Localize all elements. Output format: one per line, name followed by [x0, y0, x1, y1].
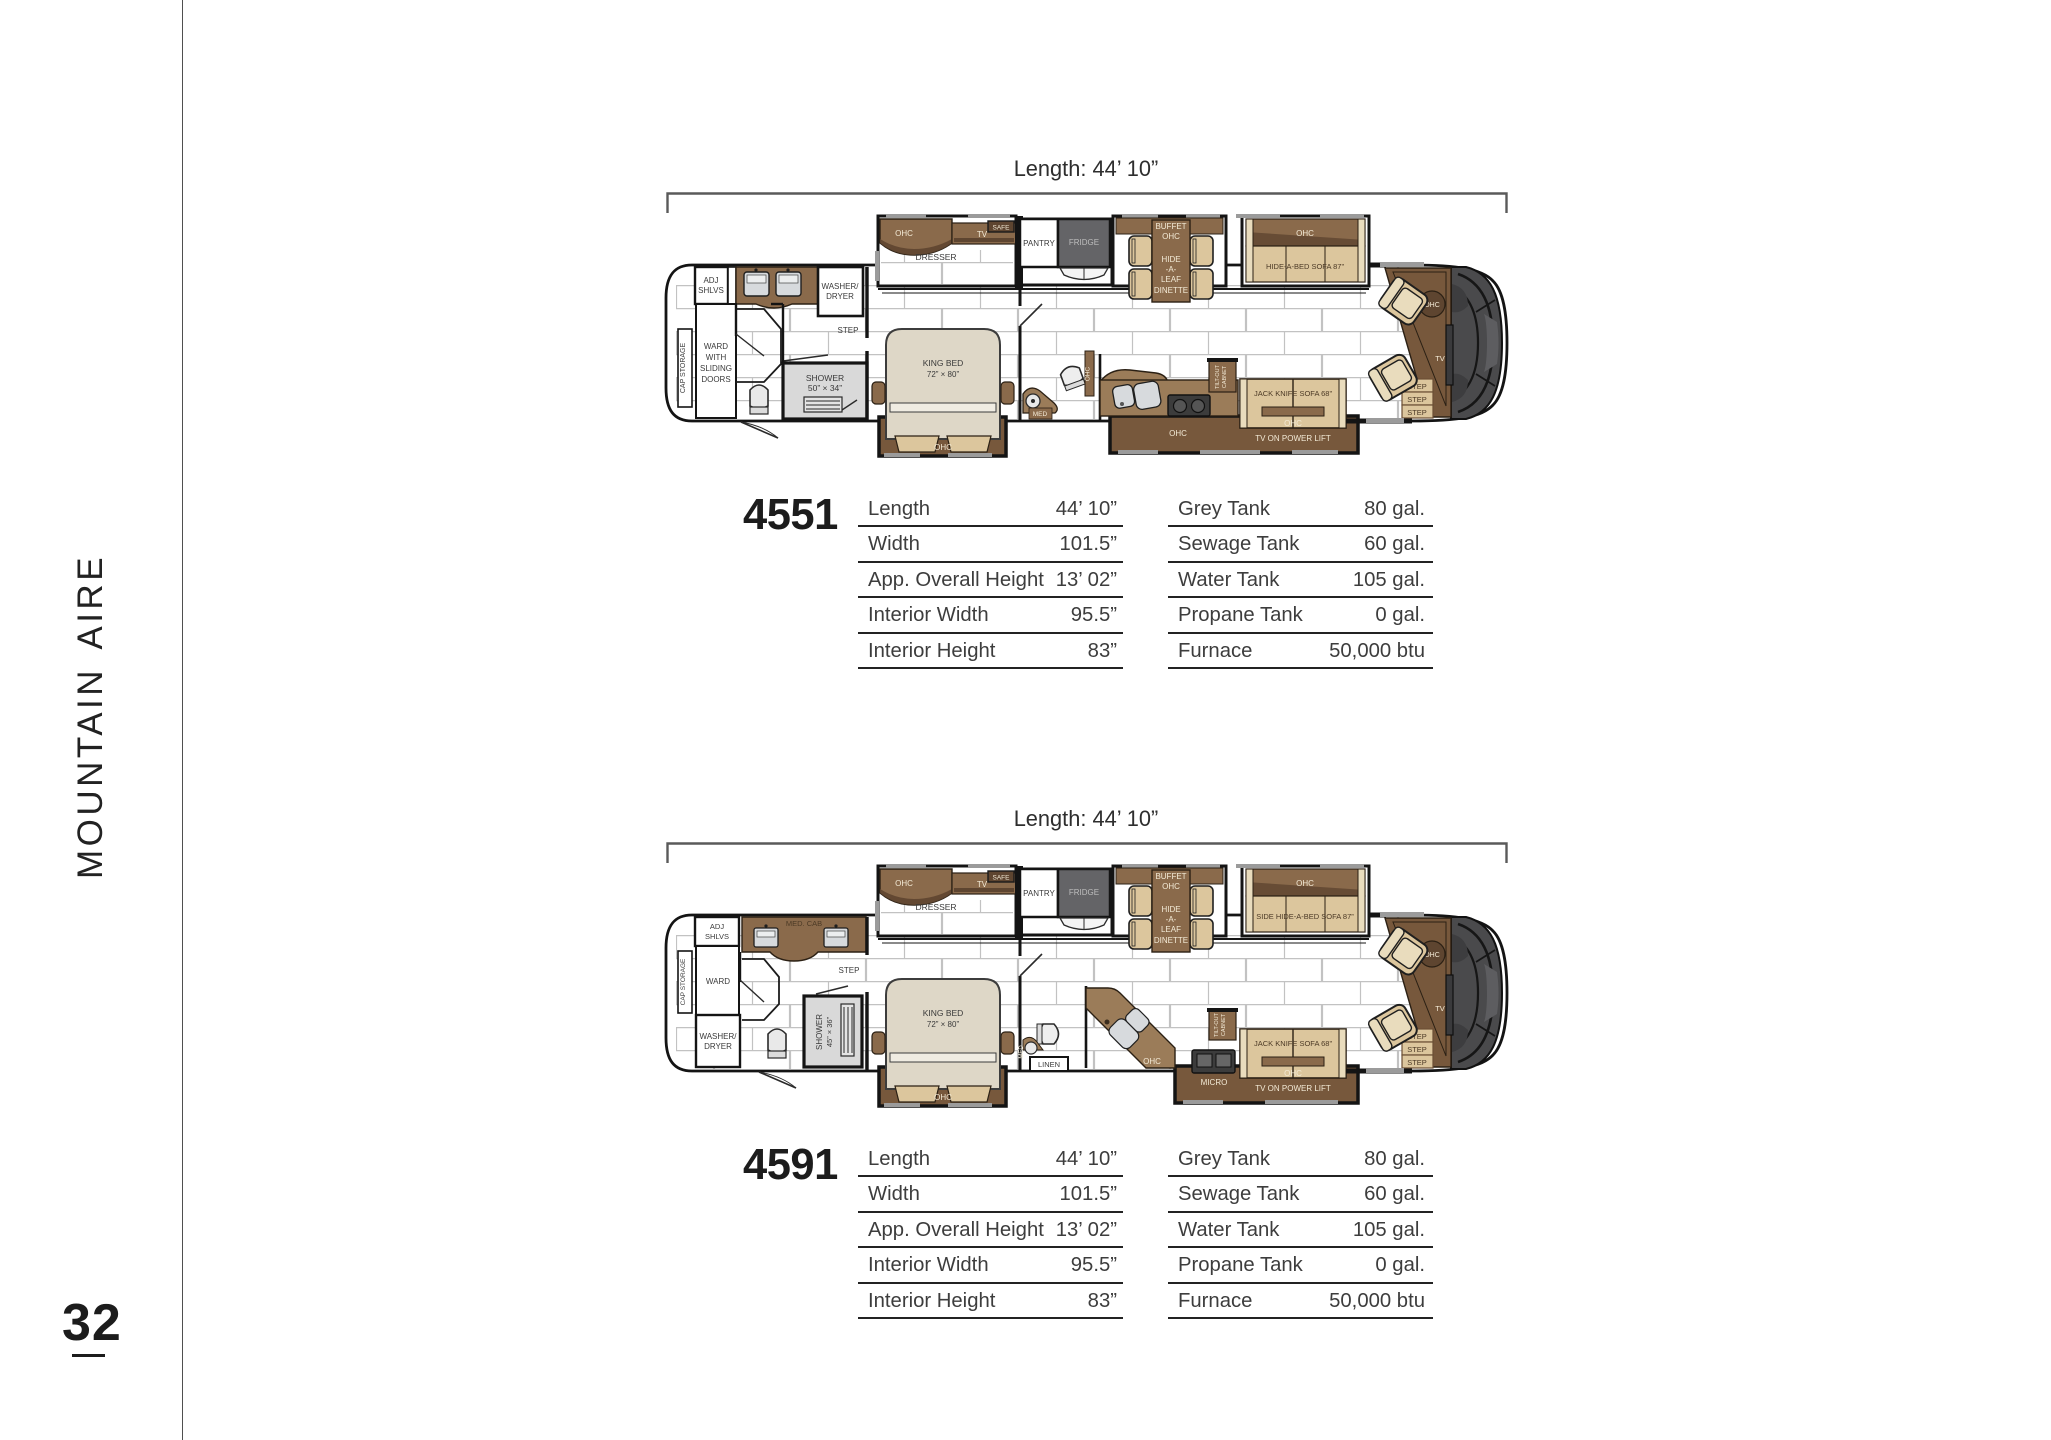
- svg-text:DINETTE: DINETTE: [1154, 936, 1188, 945]
- svg-text:SAFE: SAFE: [993, 225, 1011, 232]
- svg-text:OHC: OHC: [1162, 882, 1180, 891]
- svg-text:OHC: OHC: [1284, 419, 1302, 428]
- svg-text:SAFE: SAFE: [993, 875, 1011, 882]
- svg-text:HIDE: HIDE: [1161, 255, 1180, 264]
- svg-text:OHC: OHC: [1162, 232, 1180, 241]
- svg-text:TILT-OUT: TILT-OUT: [1214, 1012, 1220, 1037]
- svg-text:OHC: OHC: [1085, 366, 1092, 381]
- svg-text:LEAF: LEAF: [1161, 925, 1181, 934]
- svg-text:BUFFET: BUFFET: [1155, 222, 1186, 231]
- svg-text:OHC: OHC: [934, 443, 952, 452]
- svg-text:DINETTE: DINETTE: [1154, 286, 1188, 295]
- svg-text:45” × 36”: 45” × 36”: [825, 1016, 834, 1047]
- svg-text:STEP: STEP: [1407, 1058, 1427, 1067]
- svg-text:HIDE-A-BED SOFA 87”: HIDE-A-BED SOFA 87”: [1266, 262, 1344, 271]
- svg-text:OHC: OHC: [1284, 1069, 1302, 1078]
- svg-text:DRESSER: DRESSER: [915, 252, 956, 262]
- svg-text:WITH: WITH: [706, 353, 727, 362]
- svg-text:OHC: OHC: [895, 229, 913, 238]
- svg-text:JACK KNIFE SOFA 68”: JACK KNIFE SOFA 68”: [1254, 389, 1332, 398]
- svg-text:SLIDING: SLIDING: [700, 364, 732, 373]
- svg-text:TV: TV: [1435, 354, 1445, 363]
- svg-text:WARD: WARD: [706, 977, 730, 986]
- svg-text:WARD: WARD: [704, 342, 728, 351]
- svg-text:HIDE: HIDE: [1161, 905, 1180, 914]
- svg-text:TILT-OUT: TILT-OUT: [1215, 364, 1221, 389]
- svg-text:MICRO: MICRO: [1201, 1078, 1228, 1087]
- svg-text:DRESSER: DRESSER: [915, 902, 956, 912]
- svg-text:SHOWER: SHOWER: [806, 373, 844, 383]
- svg-text:ADJ: ADJ: [703, 276, 718, 285]
- svg-text:ADJ: ADJ: [710, 922, 724, 931]
- svg-text:WASHER/: WASHER/: [821, 282, 859, 291]
- svg-text:TV: TV: [977, 880, 988, 889]
- svg-text:OHC: OHC: [1296, 879, 1314, 888]
- svg-text:FRIDGE: FRIDGE: [1069, 888, 1099, 897]
- svg-text:STEP: STEP: [1407, 395, 1427, 404]
- svg-text:PANTRY: PANTRY: [1023, 889, 1055, 898]
- svg-text:OHC: OHC: [1296, 229, 1314, 238]
- svg-text:LEAF: LEAF: [1161, 275, 1181, 284]
- svg-text:BUFFET: BUFFET: [1155, 872, 1186, 881]
- svg-text:CAP STORAGE: CAP STORAGE: [680, 343, 687, 394]
- svg-text:STEP: STEP: [1407, 408, 1427, 417]
- svg-text:CAP STORAGE: CAP STORAGE: [680, 958, 687, 1005]
- svg-text:WASHER/: WASHER/: [699, 1032, 737, 1041]
- svg-text:PANTRY: PANTRY: [1023, 239, 1055, 248]
- svg-text:CABNET: CABNET: [1222, 365, 1228, 388]
- svg-text:CABNET: CABNET: [1221, 1013, 1227, 1036]
- svg-text:FRIDGE: FRIDGE: [1069, 238, 1099, 247]
- svg-text:SHOWER: SHOWER: [815, 1014, 824, 1050]
- svg-text:JACK KNIFE SOFA 68”: JACK KNIFE SOFA 68”: [1254, 1039, 1332, 1048]
- svg-text:OHC: OHC: [934, 1093, 952, 1102]
- svg-text:DRYER: DRYER: [704, 1042, 732, 1051]
- svg-text:OHC: OHC: [1143, 1057, 1161, 1066]
- svg-text:72” × 80”: 72” × 80”: [927, 370, 960, 379]
- svg-text:STEP: STEP: [838, 326, 859, 335]
- svg-text:MED. CAB: MED. CAB: [786, 919, 822, 928]
- svg-text:STEP: STEP: [1407, 1045, 1427, 1054]
- svg-text:TV: TV: [977, 230, 988, 239]
- svg-text:MED: MED: [1033, 411, 1048, 418]
- svg-text:OHC: OHC: [1169, 429, 1187, 438]
- svg-text:OHC: OHC: [895, 879, 913, 888]
- svg-text:KING BED: KING BED: [923, 1008, 964, 1018]
- svg-text:KING BED: KING BED: [923, 358, 964, 368]
- svg-text:TV: TV: [1435, 1004, 1445, 1013]
- svg-text:-A-: -A-: [1166, 915, 1177, 924]
- svg-text:STEP: STEP: [839, 966, 860, 975]
- svg-text:LINEN: LINEN: [1038, 1060, 1060, 1069]
- svg-text:SHLVS: SHLVS: [698, 286, 724, 295]
- svg-text:SHLVS: SHLVS: [705, 932, 729, 941]
- svg-text:50” × 34”: 50” × 34”: [808, 383, 842, 393]
- svg-text:MED: MED: [1019, 1045, 1025, 1059]
- svg-text:SIDE HIDE-A-BED SOFA 87”: SIDE HIDE-A-BED SOFA 87”: [1256, 912, 1354, 921]
- svg-text:TV ON POWER LIFT: TV ON POWER LIFT: [1255, 434, 1331, 443]
- svg-text:-A-: -A-: [1166, 265, 1177, 274]
- svg-text:TV ON POWER LIFT: TV ON POWER LIFT: [1255, 1084, 1331, 1093]
- svg-text:DRYER: DRYER: [826, 292, 854, 301]
- svg-text:72” × 80”: 72” × 80”: [927, 1020, 960, 1029]
- svg-text:DOORS: DOORS: [701, 375, 730, 384]
